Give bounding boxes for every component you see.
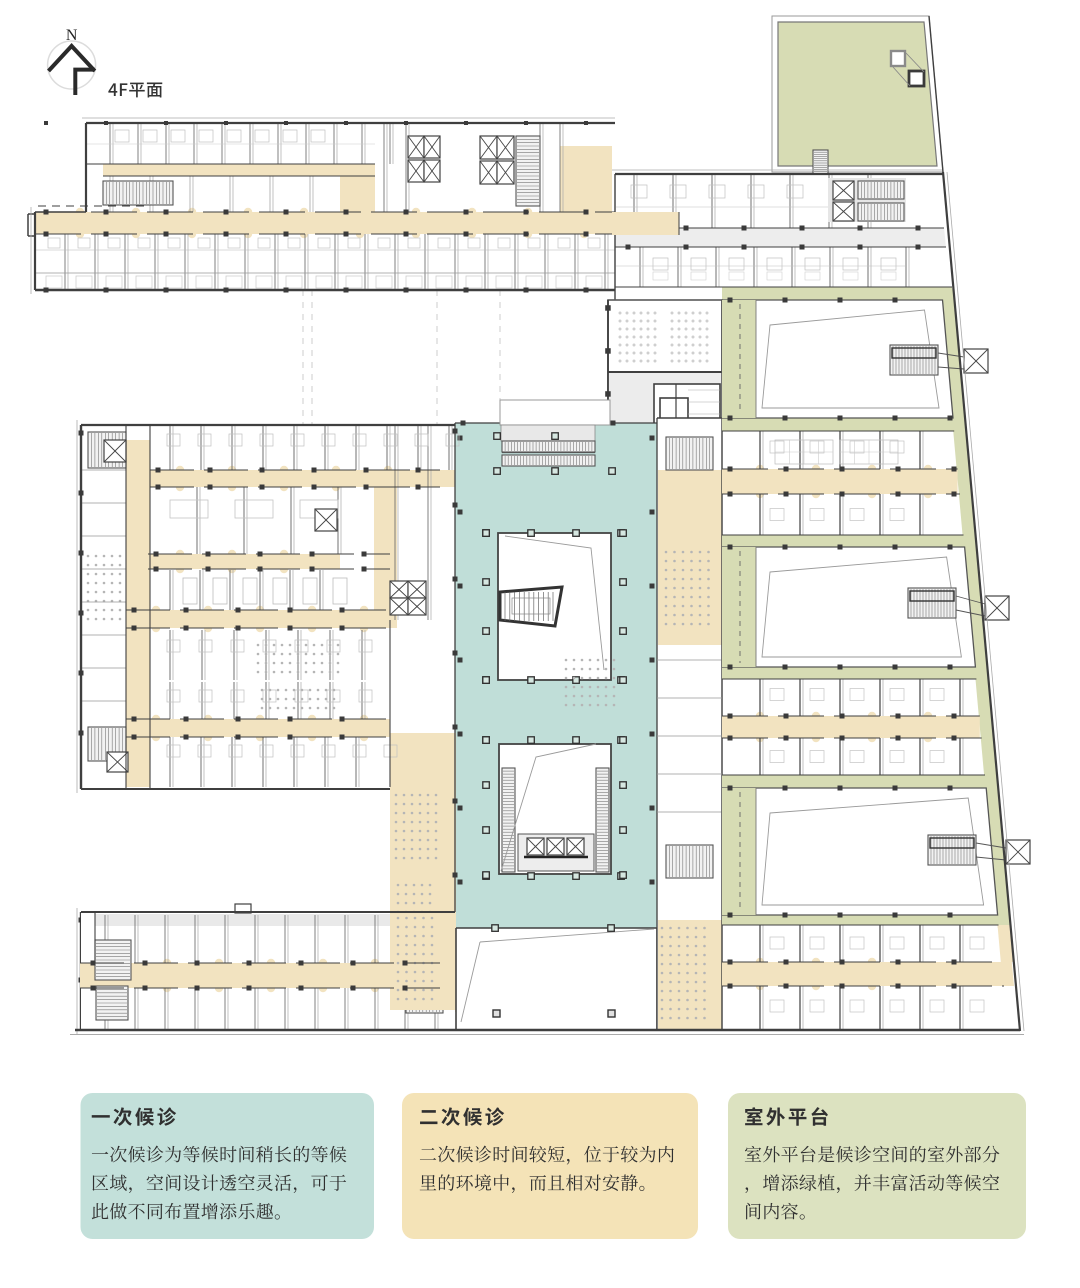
svg-text:N: N [66, 27, 78, 44]
